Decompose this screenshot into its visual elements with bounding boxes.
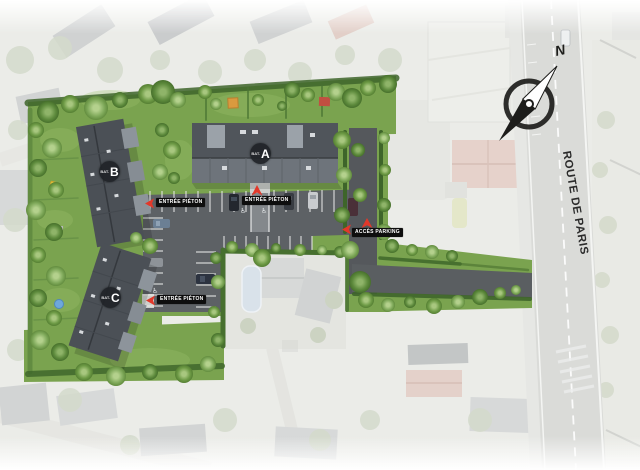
svg-text:♿: ♿ (152, 287, 158, 295)
aerial-photo-layer: ♿♿♿ (0, 0, 640, 470)
svg-text:♿: ♿ (240, 207, 246, 215)
site-plan-map: ♿♿♿ (0, 0, 640, 470)
bottom-fade (0, 436, 640, 470)
building-a (192, 123, 342, 189)
north-driveway (349, 128, 377, 234)
kiddie-pool (55, 300, 64, 309)
red-shed (319, 97, 330, 106)
swimming-pool (242, 266, 261, 312)
orange-shed (228, 98, 239, 109)
top-fade (0, 0, 640, 34)
svg-text:♿: ♿ (261, 207, 267, 215)
existing-property-enclave (224, 251, 346, 352)
